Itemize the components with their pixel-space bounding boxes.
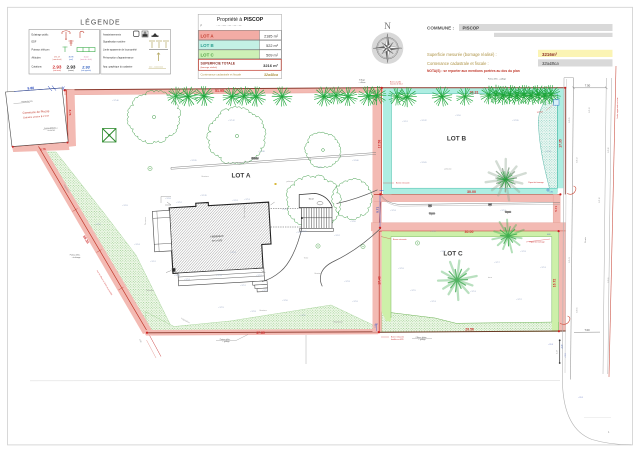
svg-text:+ 175.1: + 175.1 <box>282 209 288 211</box>
svg-text:8.76: 8.76 <box>40 147 46 152</box>
svg-text:limite apparente voisine: limite apparente voisine <box>616 97 619 119</box>
svg-text:PISCOP: PISCOP <box>463 25 480 30</box>
svg-text:+170.3: +170.3 <box>578 397 583 399</box>
svg-text:30.31: 30.31 <box>470 91 479 95</box>
svg-text:Limite apparente de la proprié: Limite apparente de la propriété <box>103 49 137 52</box>
svg-text:(semis de sol): (semis de sol) <box>53 59 62 61</box>
svg-text:+ 174.4: + 174.4 <box>134 244 140 246</box>
svg-text:LOT C: LOT C <box>201 52 215 57</box>
svg-text:Végétation: Végétation <box>333 320 343 323</box>
svg-text:+ 174.05: + 174.05 <box>420 162 427 164</box>
svg-text:37.85: 37.85 <box>256 331 265 335</box>
svg-text:+170.8: +170.8 <box>548 344 553 346</box>
svg-text:+ 172.9: + 172.9 <box>440 251 446 253</box>
svg-text:+ 172.6: + 172.6 <box>352 301 358 303</box>
svg-text:Poteaux télécom: Poteaux télécom <box>32 49 50 52</box>
svg-text:Graviers: Graviers <box>259 310 267 312</box>
svg-text:Terrasse: Terrasse <box>145 216 147 225</box>
svg-text:7.50: 7.50 <box>585 84 591 88</box>
svg-text:+ 174.2: + 174.2 <box>334 235 340 237</box>
svg-text:171.62: 171.62 <box>577 157 579 162</box>
svg-text:+ 172.8: + 172.8 <box>344 281 350 283</box>
svg-text:171.85: 171.85 <box>569 117 571 122</box>
svg-text:Graviers: Graviers <box>314 273 322 275</box>
svg-text:+ 172.4: + 172.4 <box>430 301 436 303</box>
svg-text:+ 174.6: + 174.6 <box>296 232 302 234</box>
svg-text:COMMUNE :: COMMUNE : <box>427 25 455 30</box>
svg-text:+ 172.2: + 172.2 <box>516 299 522 301</box>
svg-text:509 m²: 509 m² <box>266 53 279 57</box>
svg-text:+ 175.0: + 175.0 <box>95 224 101 226</box>
svg-text:32a48ca: 32a48ca <box>542 61 559 66</box>
svg-text:522 m²: 522 m² <box>266 44 279 48</box>
svg-text:portillon: portillon <box>537 110 543 113</box>
svg-text:30.00: 30.00 <box>465 230 474 234</box>
svg-text:travers: travers <box>505 211 511 214</box>
svg-text:fil de fer: fil de fer <box>252 158 259 160</box>
svg-text:SUPERFICIE TOTALE: SUPERFICIE TOTALE <box>201 61 236 65</box>
svg-text:Présomption d'appartenance: Présomption d'appartenance <box>103 57 134 60</box>
svg-text:(seuil): (seuil) <box>69 59 73 61</box>
svg-text:2185 m²: 2185 m² <box>264 34 279 38</box>
svg-text:+ 174.1: + 174.1 <box>402 121 408 123</box>
svg-text:30.00: 30.00 <box>467 190 476 194</box>
svg-text:Poteau téléc. + grillage: Poteau téléc. + grillage <box>488 78 506 81</box>
svg-text:171.17: 171.17 <box>54 57 60 59</box>
svg-text:Superficie mesurée (bornage ré: Superficie mesurée (bornage réalisé) : <box>427 52 497 57</box>
svg-text:+ éclairage: + éclairage <box>47 129 56 133</box>
svg-text:trouvée de 30.4: trouvée de 30.4 <box>390 83 403 86</box>
svg-text:51.95: 51.95 <box>215 89 224 93</box>
svg-text:171.05: 171.05 <box>577 307 579 312</box>
svg-text:+ clôture: + clôture <box>359 81 366 84</box>
svg-text:29.56: 29.56 <box>465 327 474 331</box>
svg-text:Signalisation routière: Signalisation routière <box>103 41 126 44</box>
svg-text:Piquet de bornage: Piquet de bornage <box>528 181 543 184</box>
svg-text:+ 173.4: + 173.4 <box>184 279 190 281</box>
svg-text:+ 174.60: + 174.60 <box>352 160 359 162</box>
svg-text:EDF: EDF <box>32 41 37 44</box>
svg-text:5.71: 5.71 <box>375 207 379 213</box>
svg-text:+170.6: +170.6 <box>565 353 567 358</box>
svg-text:+ 172.8: + 172.8 <box>250 311 256 313</box>
svg-text:Borne retrouvée: Borne retrouvée <box>393 238 407 241</box>
svg-text:App. graphique du cadastre: App. graphique du cadastre <box>103 66 133 69</box>
svg-text:+1.30: +1.30 <box>562 345 564 349</box>
svg-text:— xx — xxxx — xxx — xxx: — xx — xxxx — xxx — xxx — xxx <box>216 25 241 27</box>
svg-text:R+1+S/S: R+1+S/S <box>212 239 223 243</box>
svg-text:+ 173.1: + 173.1 <box>500 210 506 212</box>
svg-text:17.35: 17.35 <box>559 139 563 148</box>
svg-text:+ 173.7: + 173.7 <box>256 275 262 277</box>
svg-text:+ 174.70: + 174.70 <box>200 195 207 197</box>
svg-text:+ 173.0: + 173.0 <box>282 300 288 302</box>
svg-text:+ 172.4: + 172.4 <box>470 291 476 293</box>
svg-text:+ 174.88: + 174.88 <box>258 151 265 153</box>
svg-text:pelouse: pelouse <box>444 169 452 171</box>
svg-text:+ 172.4: + 172.4 <box>540 267 546 269</box>
svg-text:0.80: 0.80 <box>550 191 553 193</box>
svg-text:Borne retrouvée: Borne retrouvée <box>396 182 410 185</box>
svg-text:171.33: 171.33 <box>589 107 591 112</box>
svg-text:NOTA(S) : se reporter aux ment: NOTA(S) : se reporter aux mentions porté… <box>427 69 520 73</box>
svg-text:Contenance cadastrale et fisca: Contenance cadastrale et fiscale <box>201 73 242 77</box>
svg-text:171.12: 171.12 <box>599 197 601 202</box>
svg-text:+ 172.6: + 172.6 <box>398 268 404 270</box>
svg-text:+ 173.95: + 173.95 <box>512 120 519 122</box>
svg-text:9.80: 9.80 <box>27 86 34 90</box>
svg-text:+ 172.7: + 172.7 <box>494 262 500 264</box>
svg-text:2.93: 2.93 <box>53 65 62 70</box>
svg-text:+ 175.12: + 175.12 <box>228 120 235 122</box>
svg-text:+ 173.1: + 173.1 <box>240 285 246 287</box>
svg-text:1.30: 1.30 <box>375 324 377 327</box>
svg-text:+ 174.0: + 174.0 <box>350 221 356 223</box>
svg-text:fouillée au GPS: fouillée au GPS <box>391 339 404 341</box>
svg-text:Cotations: Cotations <box>32 66 43 69</box>
svg-text:+ 172.5: + 172.5 <box>300 315 306 317</box>
svg-text:+ 174.5: + 174.5 <box>316 167 322 169</box>
svg-text:171.20: 171.20 <box>608 147 610 152</box>
svg-text:LOT A: LOT A <box>232 173 251 180</box>
svg-text:+ éclairage: + éclairage <box>72 257 81 259</box>
svg-text:+ 175.2: + 175.2 <box>176 202 182 204</box>
svg-text:Patio végétalisé: Patio végétalisé <box>243 206 246 219</box>
svg-text:LOT A: LOT A <box>201 33 215 38</box>
svg-text:Contenance cadastrale et fisca: Contenance cadastrale et fiscale : <box>427 61 489 66</box>
svg-text:+ 173.8: + 173.8 <box>216 275 222 277</box>
svg-text:8.76: 8.76 <box>68 110 72 116</box>
svg-text:3216 m²: 3216 m² <box>263 63 279 68</box>
svg-text:+ grillage: + grillage <box>418 339 425 341</box>
svg-text:LOT C: LOT C <box>443 251 463 258</box>
svg-text:+ 174.9: + 174.9 <box>122 205 128 207</box>
svg-text:(bornage réalisé): (bornage réalisé) <box>201 66 218 69</box>
svg-text:+ 174.0: + 174.0 <box>455 115 461 117</box>
svg-text:N: N <box>384 22 391 32</box>
svg-text:+ 173.8: + 173.8 <box>174 275 180 277</box>
svg-text:Graviers: Graviers <box>146 290 154 292</box>
svg-text:+ 174.95: + 174.95 <box>190 160 197 162</box>
svg-text:+ 174.22: + 174.22 <box>420 120 427 122</box>
svg-text:15.40: 15.40 <box>84 57 89 59</box>
svg-text:32a48ca: 32a48ca <box>264 73 278 77</box>
svg-text:travers: travers <box>429 212 435 215</box>
svg-text:+ grillage: + grillage <box>222 341 229 343</box>
svg-text:LOT B: LOT B <box>447 136 467 143</box>
svg-text:171.41: 171.41 <box>569 257 571 262</box>
svg-text:5.17: 5.17 <box>557 350 559 354</box>
svg-text:+ 173.4: + 173.4 <box>390 210 396 212</box>
svg-text:+ 172.5: + 172.5 <box>410 290 416 292</box>
svg-text:Seuil: Seuil <box>309 199 314 201</box>
svg-text:17.58: 17.58 <box>377 140 381 149</box>
svg-text:+ 173.2: + 173.2 <box>430 231 436 233</box>
svg-text:+ 175.3: + 175.3 <box>244 199 250 201</box>
svg-text:+ 173.6: + 173.6 <box>545 151 551 153</box>
svg-text:3216m²: 3216m² <box>542 52 558 57</box>
svg-text:16.72: 16.72 <box>552 279 556 288</box>
svg-text:Eclairage public: Eclairage public <box>32 34 50 37</box>
svg-text:LOT B: LOT B <box>201 43 214 48</box>
svg-text:+ 173.2: + 173.2 <box>262 290 268 292</box>
svg-text:170.95: 170.95 <box>608 277 610 282</box>
svg-text:+ 174.3: + 174.3 <box>232 200 238 202</box>
svg-text:0.80: 0.80 <box>547 234 550 236</box>
svg-text:Altitudes: Altitudes <box>32 57 42 60</box>
svg-text:2.93: 2.93 <box>81 65 90 69</box>
svg-text:pelouse: pelouse <box>286 181 294 183</box>
svg-text:+ 173.9: + 173.9 <box>230 252 236 254</box>
svg-text:30.98: 30.98 <box>69 57 74 59</box>
svg-text:5.71: 5.71 <box>554 206 558 212</box>
svg-text:Assainissements: Assainissements <box>103 34 122 37</box>
svg-text:(mesure): (mesure) <box>68 70 74 72</box>
svg-text:Propriété à PISCOP: Propriété à PISCOP <box>217 17 264 23</box>
svg-text:Route: Route <box>584 236 587 243</box>
svg-text:+ 172.9: + 172.9 <box>218 307 224 309</box>
svg-text:+ 174.8: + 174.8 <box>165 198 171 200</box>
svg-text:17.40: 17.40 <box>378 276 382 285</box>
svg-text:+ 175.40: + 175.40 <box>112 100 119 102</box>
svg-text:+ 174.1: + 174.1 <box>150 261 156 263</box>
svg-text:2.93: 2.93 <box>67 65 76 70</box>
svg-text:Habitation: Habitation <box>210 234 224 239</box>
svg-text:7.00: 7.00 <box>584 328 590 332</box>
svg-text:LÉGENDE: LÉGENDE <box>80 18 120 27</box>
svg-text:Graviers: Graviers <box>201 176 209 178</box>
svg-text:+ 172.8: + 172.8 <box>520 251 526 253</box>
